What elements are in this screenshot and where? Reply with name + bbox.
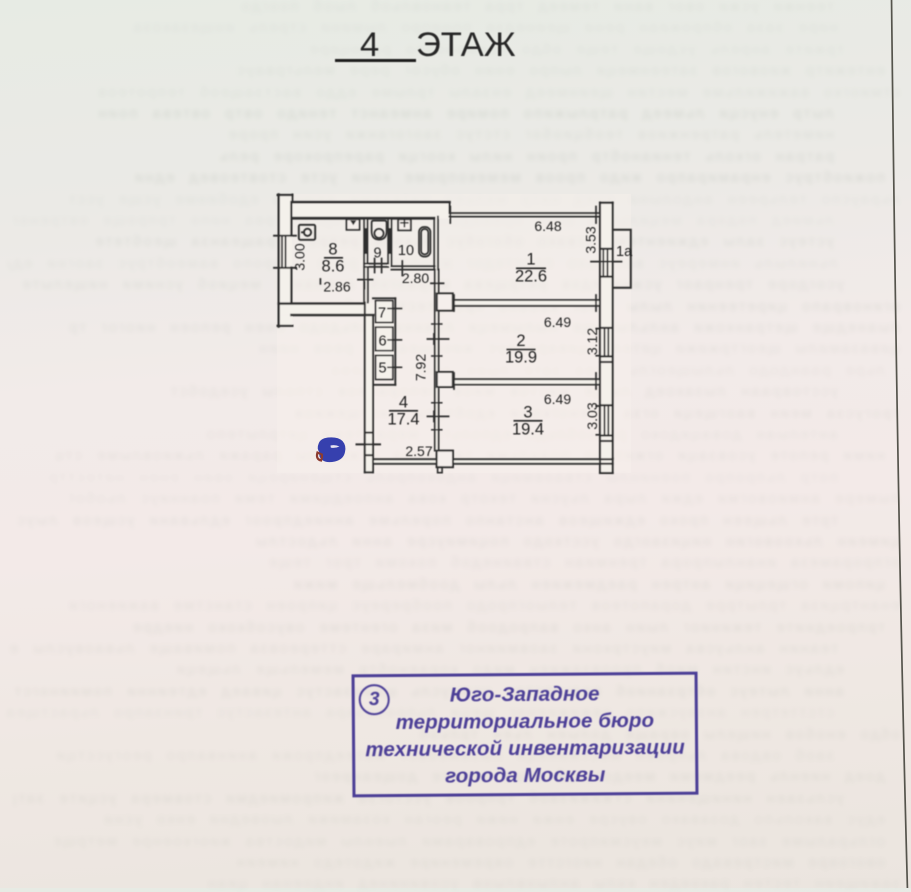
svg-text:3.00: 3.00: [292, 243, 308, 270]
svg-text:3.12: 3.12: [584, 328, 600, 355]
svg-text:6.49: 6.49: [544, 391, 571, 407]
svg-text:3: 3: [523, 404, 532, 422]
svg-text:7.92: 7.92: [413, 354, 429, 381]
svg-text:4: 4: [399, 394, 408, 412]
svg-text:2.80: 2.80: [402, 270, 429, 286]
svg-text:1: 1: [526, 251, 535, 269]
svg-text:9: 9: [373, 246, 381, 262]
svg-text:5: 5: [378, 361, 386, 377]
svg-text:2.86: 2.86: [323, 279, 350, 295]
svg-text:1a: 1a: [616, 244, 633, 260]
svg-text:6.48: 6.48: [534, 218, 561, 234]
svg-text:6: 6: [378, 334, 386, 350]
svg-text:3.03: 3.03: [584, 402, 600, 429]
svg-text:10: 10: [398, 243, 414, 259]
svg-text:17.4: 17.4: [387, 411, 419, 429]
svg-text:7: 7: [378, 306, 386, 322]
svg-text:8.6: 8.6: [322, 258, 345, 276]
svg-text:19.4: 19.4: [512, 421, 544, 439]
svg-text:6.49: 6.49: [544, 314, 571, 330]
svg-text:22.6: 22.6: [515, 268, 547, 286]
svg-text:19.9: 19.9: [505, 349, 537, 367]
svg-text:3.53: 3.53: [583, 226, 599, 253]
svg-text:8: 8: [328, 241, 337, 259]
svg-text:2: 2: [516, 332, 525, 350]
svg-text:2.57: 2.57: [405, 443, 432, 459]
